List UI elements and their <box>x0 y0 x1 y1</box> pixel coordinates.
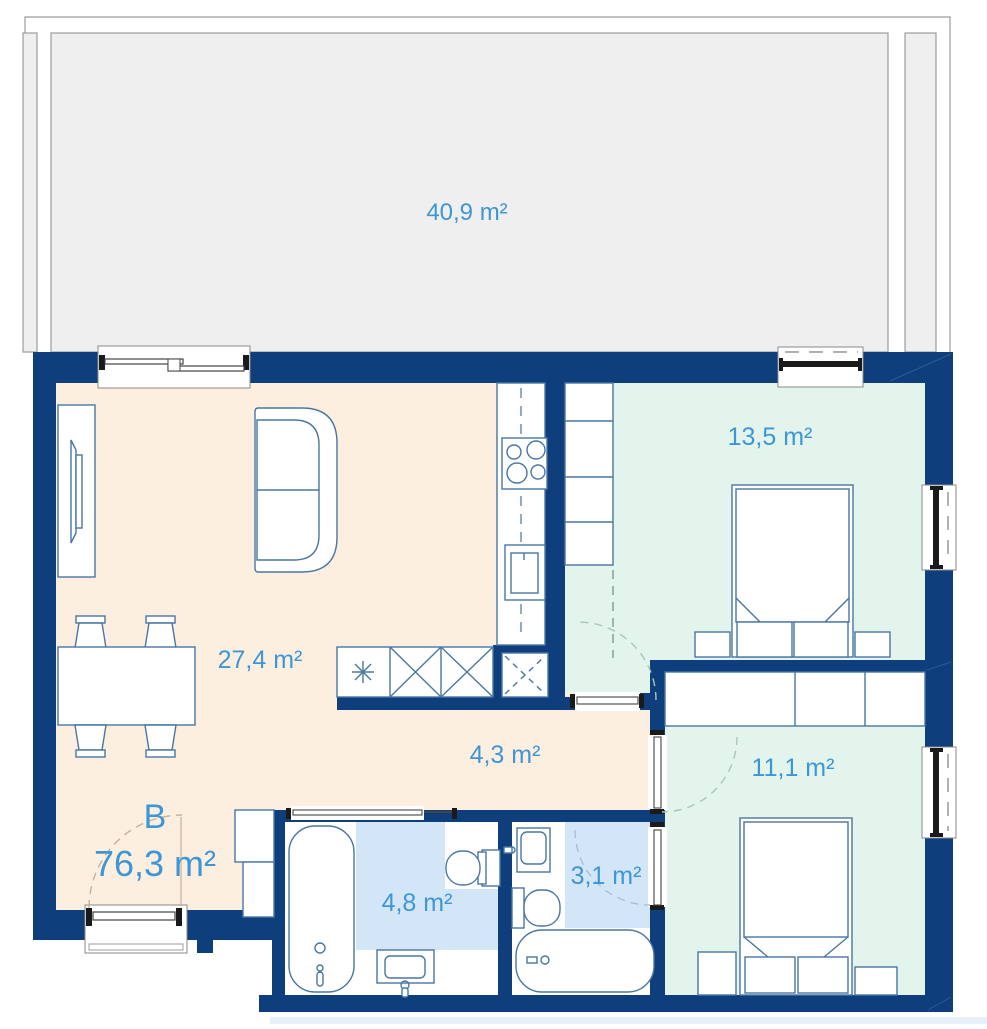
base-cabinets <box>337 647 493 697</box>
wardrobe <box>565 383 613 565</box>
lower-unit-edge <box>270 1017 987 1024</box>
chair <box>75 616 106 648</box>
unit-area-label: 76,3 m² <box>94 843 216 884</box>
appliance-icon <box>352 661 374 683</box>
chair <box>145 616 176 648</box>
ensuite-area-label: 3,1 m² <box>571 862 642 890</box>
floor-plan-canvas: 40,9 m² 27,4 m² 13,5 m² 11,1 m² 4,3 m² 4… <box>0 0 987 1024</box>
tv <box>71 440 82 543</box>
bedroom1-top-window <box>778 347 863 387</box>
kitchen-sink <box>505 545 545 600</box>
terrace-door <box>98 346 250 388</box>
terrace-side-strip-right <box>905 33 936 352</box>
nightstand <box>855 632 890 657</box>
pillow <box>745 957 795 993</box>
terrace-side-strip-left <box>23 33 37 352</box>
bathroom-area-label: 4,8 m² <box>382 889 453 917</box>
bathtub <box>289 826 354 992</box>
pillow <box>794 622 848 657</box>
living-area-label: 27,4 m² <box>218 646 303 674</box>
corner-cabinet <box>502 653 548 697</box>
wardrobe <box>665 672 925 726</box>
nightstand <box>855 967 897 995</box>
bathtub <box>516 930 654 992</box>
terrace-floor <box>51 33 888 352</box>
terrace-area-label: 40,9 m² <box>426 199 507 226</box>
toilet <box>512 888 560 928</box>
bedroom2-side-window <box>922 747 956 838</box>
bedroom2-area-label: 11,1 m² <box>752 754 835 782</box>
bedroom1-side-window <box>922 485 956 570</box>
unit-name-label: B <box>144 798 167 836</box>
pillow <box>798 957 848 993</box>
hallway-area-label: 4,3 m² <box>470 741 541 769</box>
entry-closet <box>243 862 274 917</box>
pillow <box>737 622 792 657</box>
dining-table <box>58 647 195 725</box>
sofa <box>255 408 337 572</box>
chair <box>145 725 176 757</box>
nightstand <box>695 632 730 657</box>
bedroom1-area-label: 13,5 m² <box>728 423 813 451</box>
nightstand <box>698 952 736 995</box>
toilet <box>446 850 500 886</box>
floor-plan: 40,9 m² 27,4 m² 13,5 m² 11,1 m² 4,3 m² 4… <box>0 0 987 1024</box>
stove <box>502 438 547 489</box>
chair <box>75 725 106 757</box>
entry-closet <box>235 810 274 862</box>
double-bed <box>732 485 853 657</box>
double-bed <box>740 818 852 995</box>
